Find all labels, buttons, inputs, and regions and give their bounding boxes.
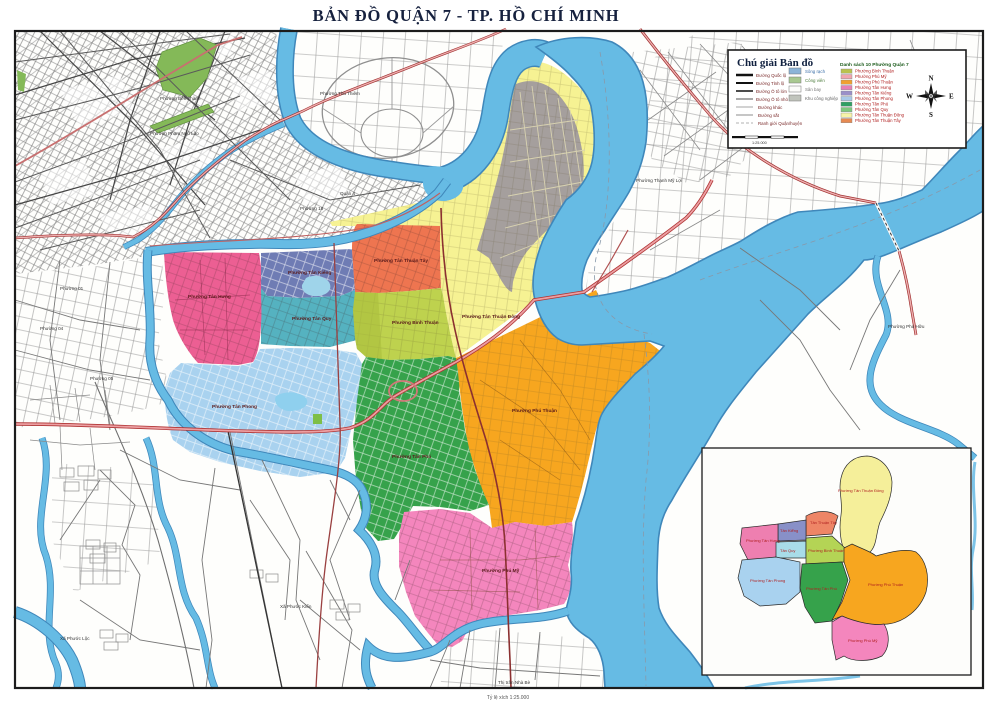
- svg-text:Danh sách 10 Phường Quận 7: Danh sách 10 Phường Quận 7: [840, 62, 909, 68]
- svg-text:Phường Bến Thành: Phường Bến Thành: [160, 96, 201, 101]
- svg-text:Chú giải Bản đồ: Chú giải Bản đồ: [737, 57, 814, 69]
- svg-text:Phường Tân Phong: Phường Tân Phong: [855, 96, 893, 101]
- svg-text:Phường Thủ Thiêm: Phường Thủ Thiêm: [320, 90, 360, 96]
- svg-text:Khu công nghiệp: Khu công nghiệp: [805, 96, 839, 101]
- svg-text:Phường Tân Phú: Phường Tân Phú: [392, 454, 431, 460]
- svg-text:Phường 01: Phường 01: [60, 286, 84, 291]
- svg-text:Phường Tân Thuận Đông: Phường Tân Thuận Đông: [855, 113, 905, 118]
- svg-text:Phường Thạnh Mỹ Lợi: Phường Thạnh Mỹ Lợi: [636, 178, 682, 183]
- svg-text:Tân Kiểng: Tân Kiểng: [780, 528, 798, 533]
- svg-text:Phường Tân Hưng: Phường Tân Hưng: [855, 85, 892, 90]
- svg-text:Đường Ô tô nhỏ: Đường Ô tô nhỏ: [756, 97, 788, 102]
- svg-text:Phường 04: Phường 04: [40, 326, 64, 331]
- svg-text:Phường Tân Phú: Phường Tân Phú: [855, 102, 889, 107]
- svg-text:Ranh giới Quận/huyện: Ranh giới Quận/huyện: [758, 121, 803, 126]
- svg-text:Phường Tân Hưng: Phường Tân Hưng: [746, 538, 780, 543]
- svg-text:Tân Thuận Tây: Tân Thuận Tây: [810, 520, 837, 525]
- svg-text:Phường Phú Mỹ: Phường Phú Mỹ: [482, 568, 520, 574]
- svg-text:1:25.000: 1:25.000: [752, 141, 767, 145]
- svg-text:Xã Phước Kiển: Xã Phước Kiển: [280, 603, 312, 609]
- svg-text:Đường sắt: Đường sắt: [758, 113, 780, 118]
- svg-text:Phường Tân Quy: Phường Tân Quy: [292, 316, 332, 322]
- svg-text:Đường Quốc lộ: Đường Quốc lộ: [756, 73, 787, 78]
- svg-text:Phường 18: Phường 18: [300, 206, 324, 211]
- svg-text:Phường Phú Thuận: Phường Phú Thuận: [855, 80, 893, 85]
- svg-text:Phường Tân Phú: Phường Tân Phú: [806, 586, 837, 591]
- svg-text:Phường Phú Mỹ: Phường Phú Mỹ: [855, 74, 887, 79]
- svg-text:Phường Bình Thuận: Phường Bình Thuận: [808, 548, 844, 553]
- svg-text:Thị trấn Nhà Bè: Thị trấn Nhà Bè: [498, 680, 531, 685]
- svg-text:Phường Tân Thuận Đông: Phường Tân Thuận Đông: [462, 314, 520, 320]
- svg-text:Đường Tỉnh lộ: Đường Tỉnh lộ: [756, 81, 785, 86]
- svg-text:Phường Phú Thuận: Phường Phú Thuận: [512, 408, 557, 414]
- svg-text:Xã Phước Lộc: Xã Phước Lộc: [60, 636, 90, 641]
- svg-text:Sân bay: Sân bay: [805, 87, 822, 92]
- svg-text:Phường Tân Quy: Phường Tân Quy: [855, 107, 889, 112]
- svg-text:W: W: [906, 92, 913, 100]
- svg-text:S: S: [929, 111, 933, 119]
- svg-text:Phường Phú Thuận: Phường Phú Thuận: [868, 582, 903, 587]
- svg-text:Phường Phạm Ngũ Lão: Phường Phạm Ngũ Lão: [150, 131, 199, 136]
- svg-text:Phường Tân Phong: Phường Tân Phong: [750, 578, 785, 583]
- svg-text:Phường Tân Hưng: Phường Tân Hưng: [188, 294, 231, 300]
- svg-text:Tỷ lệ xích 1:25.000: Tỷ lệ xích 1:25.000: [487, 694, 529, 701]
- svg-text:Phường Bình Thuận: Phường Bình Thuận: [855, 69, 895, 74]
- svg-text:Phường Tân Thuận Tây: Phường Tân Thuận Tây: [374, 258, 428, 264]
- svg-text:Quận 4: Quận 4: [340, 191, 356, 196]
- svg-text:Công viên: Công viên: [805, 78, 825, 83]
- svg-text:Đường khác: Đường khác: [758, 105, 783, 110]
- svg-text:Phường Phú Mỹ: Phường Phú Mỹ: [848, 638, 877, 643]
- svg-text:Đường Ô tô lớn: Đường Ô tô lớn: [756, 89, 787, 94]
- svg-text:Phường Tân Thuận Tây: Phường Tân Thuận Tây: [855, 118, 902, 123]
- svg-text:Sông rạch: Sông rạch: [805, 69, 826, 74]
- svg-text:Phường Tân Thuận Đông: Phường Tân Thuận Đông: [838, 488, 884, 493]
- svg-text:E: E: [949, 92, 954, 100]
- svg-text:Phường Phú Hữu: Phường Phú Hữu: [888, 324, 925, 329]
- svg-text:Phường Tân Kiểng: Phường Tân Kiểng: [855, 91, 892, 96]
- svg-text:Tân Quy: Tân Quy: [780, 548, 795, 553]
- svg-text:Phường Bình Thuận: Phường Bình Thuận: [392, 320, 439, 326]
- svg-text:Phường Tân Phong: Phường Tân Phong: [212, 404, 257, 410]
- svg-text:Phường Tân Kiểng: Phường Tân Kiểng: [288, 269, 331, 276]
- svg-text:N: N: [928, 75, 933, 83]
- svg-text:BẢN ĐỒ QUẬN 7 - TP. HỒ CHÍ MIN: BẢN ĐỒ QUẬN 7 - TP. HỒ CHÍ MINH: [313, 5, 620, 25]
- svg-text:Phường 05: Phường 05: [90, 376, 114, 381]
